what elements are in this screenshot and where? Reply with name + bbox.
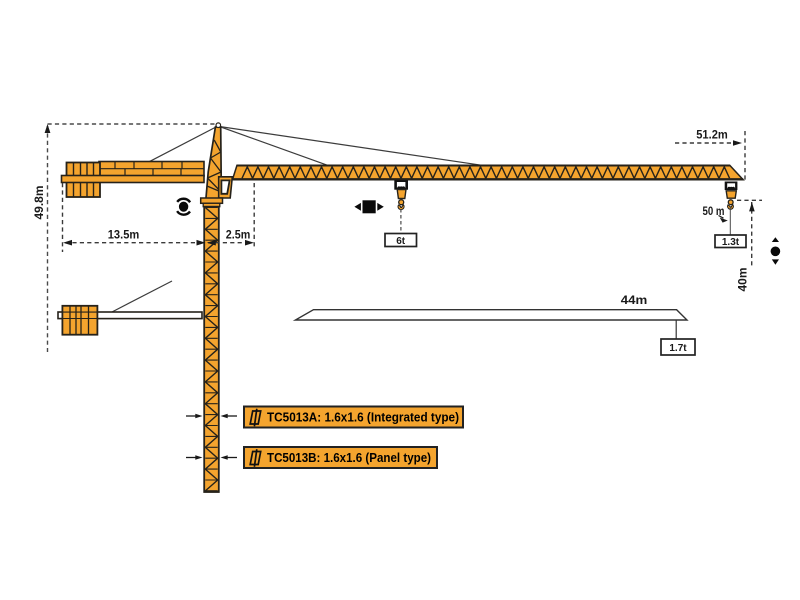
svg-text:1.7t: 1.7t — [669, 343, 687, 354]
svg-text:49.8m: 49.8m — [32, 185, 46, 219]
svg-text:TC5013A: 1.6x1.6 (Integrated: TC5013A: 1.6x1.6 (Integrated type) — [267, 411, 459, 425]
svg-text:40m: 40m — [736, 267, 750, 291]
svg-text:50 m: 50 m — [703, 204, 725, 218]
svg-text:2.5m: 2.5m — [226, 228, 251, 242]
svg-text:13.5m: 13.5m — [108, 228, 140, 242]
svg-text:51.2m: 51.2m — [696, 128, 728, 142]
svg-text:44m: 44m — [621, 293, 648, 307]
svg-text:6t: 6t — [396, 236, 406, 247]
svg-text:1.3t: 1.3t — [722, 237, 740, 248]
svg-text:TC5013B: 1.6x1.6 (Panel type: TC5013B: 1.6x1.6 (Panel type) — [267, 451, 431, 465]
